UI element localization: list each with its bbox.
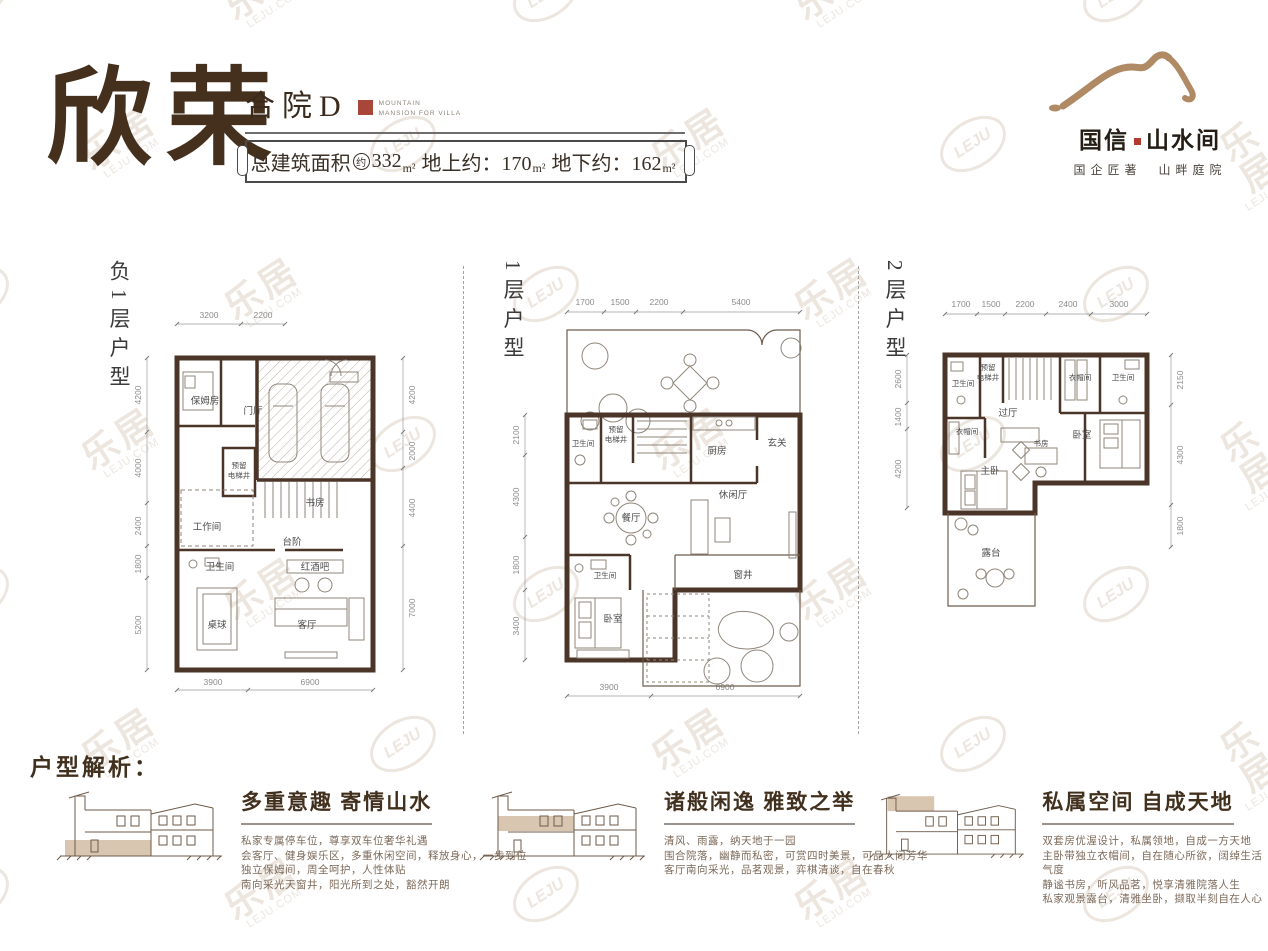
svg-text:2600: 2600	[893, 369, 903, 388]
svg-text:1800: 1800	[511, 555, 521, 574]
svg-text:卫生间: 卫生间	[206, 561, 235, 573]
analysis-line: 私家观景露台，清雅坐卧，撷取半刻自在人心	[1042, 892, 1268, 907]
analysis-block-3: 私属空间 自成天地 双套房优渥设计，私属领地，自成一方天地 主卧带独立衣帽间，自…	[868, 786, 1268, 907]
section-illustration-second-floor	[868, 786, 1028, 868]
svg-text:4200: 4200	[133, 385, 143, 404]
banner-above-unit: m²	[533, 161, 546, 176]
svg-text:卫生间: 卫生间	[952, 378, 975, 388]
svg-text:3000: 3000	[1110, 299, 1129, 309]
analysis-line: 南向采光天窗井，阳光所到之处，豁然开朗	[241, 878, 527, 893]
unit-type-label: 合院D	[245, 92, 348, 122]
svg-text:保姆房: 保姆房	[191, 395, 220, 407]
dim-chain-top: 1700 1500 2200 2400 3000	[943, 299, 1149, 316]
svg-text:窗井: 窗井	[733, 569, 752, 581]
svg-text:电梯井: 电梯井	[977, 372, 1000, 382]
dim-chain-top: 1700 1500 2200 5400	[565, 297, 802, 314]
svg-text:3400: 3400	[511, 616, 521, 635]
banner-above: 地上约：170	[422, 147, 532, 176]
dim-chain-left: 2600 1400 4200	[893, 353, 909, 510]
svg-text:5200: 5200	[133, 615, 143, 634]
floorplan-basement: 3200 2200 4200 4000 2400 1800 5200 4200 …	[125, 288, 425, 713]
analysis-block-1: 多重意趣 寄情山水 私家专属停车位，尊享双车位奢华礼遇 会客厅、健身娱乐区，多重…	[55, 786, 527, 892]
section-illustration-first-floor	[478, 786, 650, 868]
svg-text:卧室: 卧室	[603, 613, 622, 625]
analysis-title-1: 多重意趣 寄情山水	[241, 786, 432, 825]
banner-label: 总建筑面积	[251, 147, 351, 176]
analysis-line: 双套房优渥设计，私属领地，自成一方天地	[1042, 834, 1268, 849]
watermark-logo-badge: LEJU	[0, 254, 19, 333]
first-floor-room-labels: 卫生间 预留 电梯井 厨房 玄关 餐厅 休闲厅 卫生间 卧室 窗井	[572, 424, 787, 625]
svg-text:4300: 4300	[1175, 445, 1185, 464]
svg-text:电梯井: 电梯井	[228, 470, 251, 480]
svg-text:卫生间: 卫生间	[1112, 372, 1135, 382]
svg-text:4300: 4300	[511, 487, 521, 506]
svg-text:主卧: 主卧	[980, 465, 1000, 477]
banner-below: 地下约：162	[551, 147, 661, 176]
watermark-logo-badge: LEJU	[930, 704, 1017, 783]
first-floor-furniture	[575, 417, 798, 684]
analysis-block-2: 诸般闲逸 雅致之举 清风、雨露，纳天地于一园 围合院落，幽静而私密，可赏四时美景…	[478, 786, 928, 878]
svg-text:玄关: 玄关	[767, 437, 787, 449]
svg-text:门厅: 门厅	[243, 405, 263, 417]
watermark-text: 乐居LEJU.COM	[1205, 409, 1268, 513]
svg-text:衣帽间: 衣帽间	[956, 426, 979, 436]
watermark-logo-badge: LEJU	[1073, 0, 1160, 34]
analysis-title-2: 诸般闲逸 雅致之举	[664, 786, 855, 825]
banner-below-unit: m²	[662, 161, 675, 176]
watermark-text: 乐居LEJU.COM	[219, 0, 312, 35]
svg-text:4200: 4200	[893, 459, 903, 478]
svg-text:卧室: 卧室	[1072, 429, 1091, 441]
svg-text:4000: 4000	[133, 458, 143, 477]
svg-text:书房: 书房	[305, 497, 324, 509]
dim-chain-right: 2150 4300 1800	[1169, 353, 1185, 549]
dim-chain-bottom: 3900 6900	[565, 682, 802, 698]
svg-text:厨房: 厨房	[707, 445, 726, 457]
svg-text:4200: 4200	[407, 385, 417, 404]
svg-text:2200: 2200	[650, 297, 669, 307]
analysis-line: 主卧带独立衣帽间，自在随心所欲，阔绰生活气度	[1042, 849, 1268, 878]
watermark-logo-badge: LEJU	[0, 0, 19, 34]
seal-caption-line1: MOUNTAIN	[379, 100, 421, 107]
banner-total-unit: m²	[403, 161, 416, 176]
header-divider	[245, 132, 685, 134]
svg-text:6900: 6900	[301, 677, 320, 687]
dim-chain-top: 3200 2200	[175, 310, 287, 326]
svg-text:工作间: 工作间	[193, 521, 222, 533]
brand-logo: 国信山水间 国企匠著 山畔庭院	[1040, 46, 1260, 178]
analysis-title-3: 私属空间 自成天地	[1042, 786, 1233, 825]
plan-divider-1	[463, 266, 464, 734]
dim-chain-left: 4200 4000 2400 1800 5200	[133, 356, 149, 672]
watermark-logo-badge: LEJU	[0, 554, 19, 633]
svg-text:7000: 7000	[407, 598, 417, 617]
svg-text:1700: 1700	[576, 297, 595, 307]
svg-text:客厅: 客厅	[297, 619, 317, 631]
brand-first: 国信	[1079, 128, 1129, 153]
watermark-logo-badge: LEJU	[930, 104, 1017, 183]
watermark-logo-badge: LEJU	[503, 0, 590, 34]
svg-text:休闲厅: 休闲厅	[719, 489, 748, 501]
svg-text:1800: 1800	[1175, 516, 1185, 535]
dim-chain-left: 2100 4300 1800 3400	[511, 413, 527, 662]
svg-text:卫生间: 卫生间	[594, 570, 617, 580]
floorplan-second-floor: 1700 1500 2200 2400 3000 2600 1400 4200 …	[875, 288, 1205, 708]
analysis-line: 静谧书房，听风品茗，悦享清雅院落人生	[1042, 878, 1268, 893]
approx-mark: 约	[353, 153, 370, 170]
watermark-logo-badge: LEJU	[360, 704, 447, 783]
svg-text:2200: 2200	[254, 310, 273, 320]
svg-text:1400: 1400	[893, 407, 903, 426]
svg-text:1500: 1500	[982, 299, 1001, 309]
svg-text:2000: 2000	[407, 441, 417, 460]
brochure-canvas: LEJU乐居LEJU.COMLEJU乐居LEJU.COMLEJU乐居LEJU.C…	[0, 0, 1268, 951]
brand-tagline: 国企匠著 山畔庭院	[1040, 161, 1260, 178]
svg-text:1700: 1700	[952, 299, 971, 309]
svg-text:红酒吧: 红酒吧	[301, 561, 330, 573]
svg-text:桌球: 桌球	[207, 619, 227, 631]
second-floor-furniture	[949, 358, 1140, 599]
dim-chain-right: 4200 2000 4400 7000	[401, 356, 417, 672]
svg-text:餐厅: 餐厅	[621, 512, 641, 524]
banner-total-value: 332	[372, 150, 402, 173]
dim-chain-bottom: 3900 6900	[175, 677, 375, 692]
svg-text:1800: 1800	[133, 554, 143, 573]
svg-text:2400: 2400	[133, 516, 143, 535]
area-banner: 总建筑面积 约 332 m² 地上约：170 m² 地下约：162 m²	[245, 140, 687, 183]
svg-text:3200: 3200	[200, 310, 219, 320]
svg-text:卫生间: 卫生间	[572, 438, 595, 448]
svg-text:5400: 5400	[732, 297, 751, 307]
svg-text:3900: 3900	[204, 677, 223, 687]
svg-text:2150: 2150	[1175, 370, 1185, 389]
brand-name: 国信山水间	[1040, 121, 1260, 155]
svg-text:书房: 书房	[1034, 438, 1049, 448]
svg-text:预留: 预留	[981, 362, 996, 372]
svg-text:预留: 预留	[232, 460, 247, 470]
analysis-heading: 户型解析：	[30, 748, 160, 782]
floorplan-first-floor: 1700 1500 2200 5400 2100 4300 1800 3400 …	[495, 288, 825, 718]
svg-text:4400: 4400	[407, 498, 417, 517]
svg-text:预留: 预留	[609, 424, 624, 434]
brand-second: 山水间	[1146, 128, 1221, 153]
svg-text:台阶: 台阶	[282, 536, 302, 548]
svg-text:过厅: 过厅	[998, 407, 1018, 419]
svg-text:1500: 1500	[611, 297, 630, 307]
seal-icon	[358, 100, 373, 115]
watermark-text: 乐居LEJU.COM	[789, 0, 882, 35]
seal-caption: MOUNTAIN MANSION FOR VILLA	[379, 99, 461, 119]
brand-dot-icon	[1134, 138, 1141, 145]
svg-text:2200: 2200	[1016, 299, 1035, 309]
svg-text:3900: 3900	[600, 682, 619, 692]
unit-type-row: 合院D MOUNTAIN MANSION FOR VILLA	[245, 92, 461, 122]
mountain-logo-icon	[1045, 46, 1255, 114]
svg-text:衣帽间: 衣帽间	[1069, 372, 1092, 382]
plan-divider-2	[858, 266, 859, 734]
seal-caption-line2: MANSION FOR VILLA	[379, 110, 461, 117]
svg-text:2400: 2400	[1059, 299, 1078, 309]
svg-text:露台: 露台	[981, 547, 1000, 559]
svg-text:2100: 2100	[511, 425, 521, 444]
svg-text:电梯井: 电梯井	[605, 434, 628, 444]
section-illustration-basement	[55, 786, 227, 868]
watermark-logo-badge: LEJU	[0, 854, 19, 933]
